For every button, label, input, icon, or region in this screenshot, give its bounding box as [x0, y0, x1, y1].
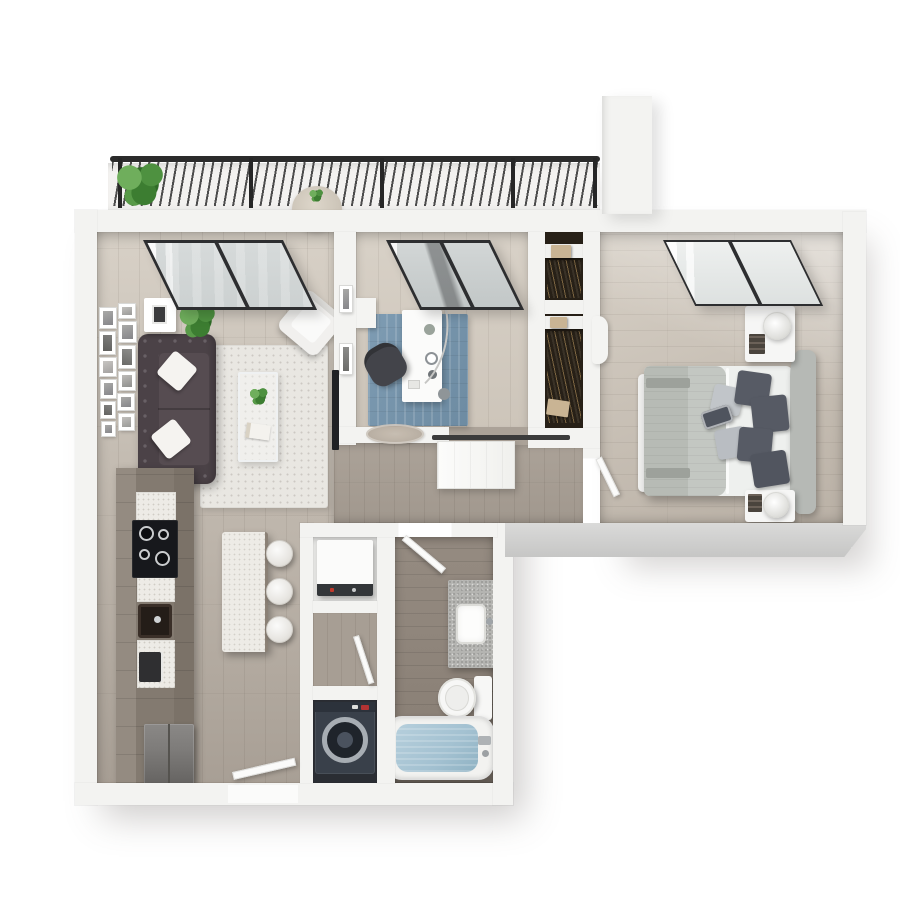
throw-blanket-band: [646, 468, 690, 478]
gallery-frame: [119, 414, 134, 430]
appliance-indicator: [330, 588, 334, 592]
arc-lamp-head: [438, 388, 450, 400]
table-lamp: [763, 492, 789, 518]
storage-box: [551, 245, 571, 258]
burner: [139, 549, 150, 560]
office-wall-frame: [340, 286, 352, 312]
railing-post: [380, 158, 384, 208]
gallery-frame: [119, 372, 135, 390]
gallery-frame: [119, 346, 135, 368]
refrigerator-door-seam: [168, 724, 170, 786]
laundry-east-wall: [377, 523, 395, 783]
closet-divider-wall: [545, 300, 583, 314]
wall-bathroom-east: [493, 523, 513, 805]
gallery-frame: [100, 332, 115, 354]
book-stack: [748, 494, 762, 512]
balcony-balusters: [112, 161, 598, 206]
wall-bedroom-south-chamfered: [505, 523, 866, 557]
tub-knob: [482, 750, 489, 757]
gallery-frame: [100, 358, 116, 376]
laundry-west-wall: [300, 523, 313, 783]
arc-lamp-base: [356, 298, 376, 328]
bar-stool: [266, 578, 293, 605]
laundry-divider-wall: [313, 686, 377, 700]
bar-stool: [266, 616, 293, 643]
burner: [158, 529, 169, 540]
storage-box: [546, 399, 570, 418]
railing-post: [593, 158, 597, 208]
washer-drum-hub: [337, 732, 353, 748]
storage-box: [550, 317, 567, 328]
window-mullion: [728, 242, 762, 304]
wall-mounted-tv: [332, 370, 339, 450]
book-stack: [749, 334, 765, 354]
scalloped-wall-decor: [592, 316, 608, 364]
office-wall-frame: [340, 344, 352, 374]
coffee-maker: [139, 652, 161, 682]
window-mullion: [439, 243, 474, 307]
entry-threshold: [228, 785, 298, 803]
railing-post: [249, 158, 253, 208]
railing-post: [511, 158, 515, 208]
bathroom-north-wall: [452, 523, 497, 537]
coffee-table-plant: [248, 386, 270, 408]
appliance-knob: [352, 588, 356, 592]
kitchen-island: [222, 532, 268, 652]
floor-plan-canvas: [0, 0, 900, 900]
gallery-frame: [118, 394, 134, 410]
balcony-palm-plant: [112, 158, 170, 214]
table-lamp: [763, 312, 791, 340]
gallery-frame: [119, 304, 135, 318]
bathroom-north-wall: [300, 523, 398, 537]
gallery-frame: [101, 402, 115, 418]
four-burner-cooktop: [132, 520, 178, 578]
wall-medallion: [366, 424, 424, 444]
throw-blanket-band: [646, 378, 690, 388]
tub-faucet: [478, 736, 491, 745]
gallery-frame: [100, 308, 116, 328]
upholstered-headboard: [790, 350, 816, 514]
burner: [139, 526, 154, 541]
gallery-frame: [102, 422, 115, 436]
sofa-cushion-seam: [158, 408, 210, 410]
bathtub-water: [396, 724, 478, 772]
exterior-wall-stub: [602, 96, 652, 214]
wall-bedroom-east: [843, 212, 866, 525]
quartz-counter: [136, 492, 176, 522]
dark-pillow: [750, 449, 791, 488]
laundry-divider-wall: [313, 601, 377, 613]
toilet-seat: [445, 685, 469, 711]
barn-door-rail: [432, 435, 570, 440]
vanity-faucet: [486, 618, 493, 625]
quartz-counter: [137, 577, 175, 602]
wall-office-closet: [528, 232, 545, 428]
sink-faucet: [154, 616, 161, 623]
toilet-tank: [474, 676, 492, 720]
washer-indicator: [361, 705, 369, 710]
sliding-barn-door: [437, 441, 515, 489]
hanging-clothes: [547, 260, 581, 298]
table-plant: [308, 188, 325, 204]
wall-west: [75, 210, 97, 805]
burner: [155, 551, 170, 566]
gallery-frame: [101, 380, 116, 398]
vanity-sink: [456, 604, 486, 644]
gallery-frame: [119, 322, 136, 342]
coffee-table-book: [245, 422, 271, 440]
cube-shelf-art: [152, 305, 167, 324]
bar-stool: [266, 540, 293, 567]
window-mullion: [214, 243, 249, 307]
washer-indicator: [352, 705, 358, 709]
appliance-control-panel: [317, 584, 373, 596]
wall-north: [75, 210, 866, 232]
